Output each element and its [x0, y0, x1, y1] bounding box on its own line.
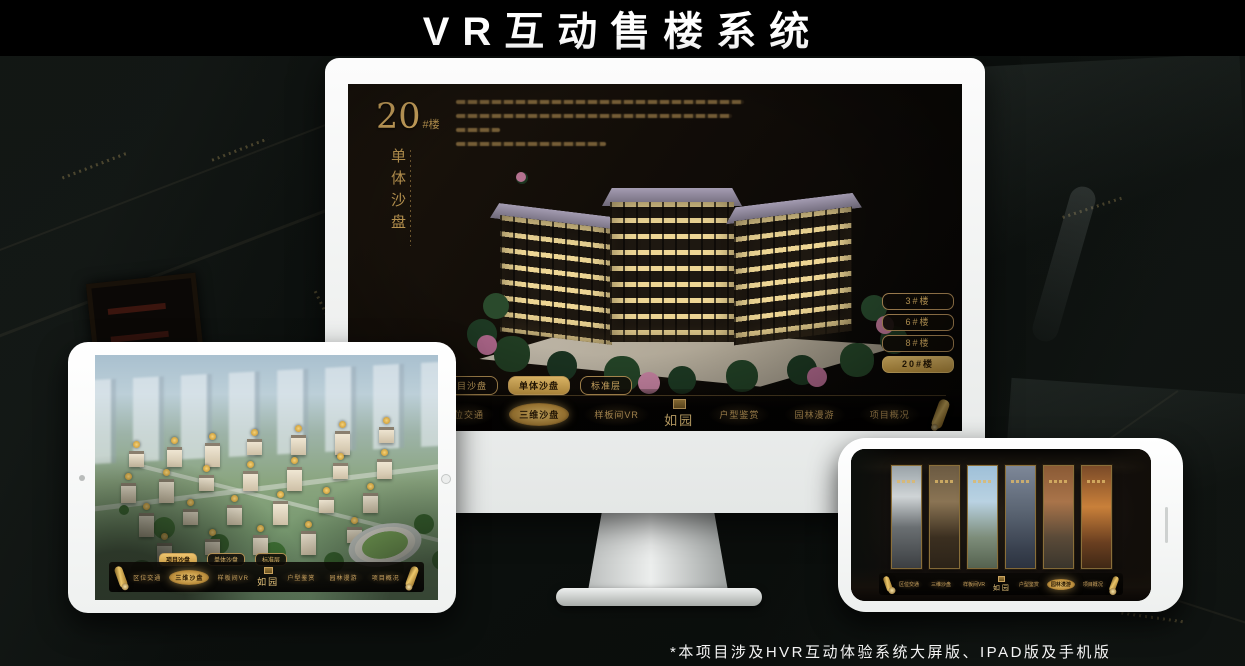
- title-bar: VR互动售楼系统: [0, 0, 1245, 56]
- monitor-stand-neck: [588, 511, 728, 591]
- logo-name: 如园: [993, 583, 1011, 593]
- building-marker[interactable]: [323, 487, 330, 494]
- gallery-panel-6[interactable]: [1081, 465, 1112, 569]
- aerial-building: [291, 435, 306, 455]
- page-title: VR互动售楼系统: [423, 0, 823, 57]
- nav-item-6[interactable]: 项目概况: [366, 570, 406, 585]
- main-navbar: 区位交通三维沙盘样板间VR如园户型鉴赏园林漫游项目概况: [879, 573, 1123, 595]
- building-marker[interactable]: [161, 533, 168, 540]
- aerial-building: [333, 463, 348, 479]
- gallery-panel-2[interactable]: [929, 465, 960, 569]
- side-button[interactable]: [1165, 507, 1168, 543]
- building-marker[interactable]: [143, 503, 150, 510]
- building-marker[interactable]: [247, 461, 254, 468]
- nav-item-4[interactable]: 户型鉴赏: [709, 403, 769, 426]
- aerial-building: [243, 471, 258, 491]
- building-model[interactable]: [460, 144, 890, 390]
- aerial-building: [377, 459, 392, 479]
- camera-icon: [79, 475, 85, 481]
- gallery-panels: [893, 465, 1109, 567]
- scroll-tip-icon: [404, 583, 413, 592]
- aerial-building: [253, 535, 268, 555]
- gallery-panel-4[interactable]: [1005, 465, 1036, 569]
- nav-item-3[interactable]: 样板间VR: [959, 579, 989, 590]
- scroll-tip-icon: [887, 586, 896, 595]
- scroll-icon[interactable]: [1108, 575, 1119, 592]
- building-button-2[interactable]: 6#楼: [882, 314, 954, 331]
- building-marker[interactable]: [231, 495, 238, 502]
- aerial-building: [247, 439, 262, 455]
- nav-item-6[interactable]: 项目概况: [1079, 579, 1107, 590]
- nav-item-6[interactable]: 项目概况: [860, 403, 920, 426]
- phone-frame: 区位交通三维沙盘样板间VR如园户型鉴赏园林漫游项目概况: [838, 438, 1183, 612]
- building-marker[interactable]: [291, 457, 298, 464]
- nav-item-2[interactable]: 三维沙盘: [509, 403, 569, 426]
- main-navbar: 区位交通三维沙盘样板间VR如园户型鉴赏园林漫游项目概况: [109, 562, 424, 592]
- aerial-building: [121, 483, 136, 503]
- aerial-building: [167, 447, 182, 467]
- monitor-stand-base: [556, 588, 762, 606]
- section-heading: 20#楼: [376, 100, 440, 135]
- intro-text-line: [456, 100, 744, 104]
- scroll-tip-icon: [930, 423, 939, 431]
- aerial-building: [183, 509, 198, 525]
- aerial-building: [287, 467, 302, 491]
- gallery-panel-3[interactable]: [967, 465, 998, 569]
- aerial-building: [335, 431, 350, 455]
- map-label-dash: [1121, 612, 1185, 624]
- scroll-tip-icon: [121, 582, 130, 591]
- gallery-panel-5[interactable]: [1043, 465, 1074, 569]
- aerial-building: [199, 475, 214, 491]
- building-marker[interactable]: [351, 517, 358, 524]
- nav-item-5[interactable]: 园林漫游: [785, 403, 845, 426]
- map-label-dash: [62, 152, 128, 180]
- logo-name: 如园: [257, 575, 279, 588]
- scroll-tip-icon: [1108, 587, 1117, 596]
- phone-screen: 区位交通三维沙盘样板间VR如园户型鉴赏园林漫游项目概况: [851, 449, 1151, 601]
- aerial-building: [319, 497, 334, 513]
- aerial-building: [301, 531, 316, 555]
- section-subtitle: 单体沙盘: [388, 148, 409, 236]
- building-button-1[interactable]: 3#楼: [882, 293, 954, 310]
- building-marker[interactable]: [133, 441, 140, 448]
- ruyuan-logo: 如园: [993, 576, 1011, 593]
- building-button-3[interactable]: 8#楼: [882, 335, 954, 352]
- aerial-building: [379, 427, 394, 443]
- building-marker[interactable]: [171, 437, 178, 444]
- logo-seal-icon: [264, 567, 273, 574]
- intro-text-line: [456, 128, 500, 132]
- intro-text-line: [456, 114, 732, 118]
- nav-item-1[interactable]: 区位交通: [895, 579, 923, 590]
- poster: VR互动售楼系统 20#楼 单体沙盘: [0, 0, 1245, 666]
- nav-item-5[interactable]: 园林漫游: [324, 570, 364, 585]
- building-facade: [734, 207, 852, 345]
- aerial-building: [273, 501, 288, 525]
- building-marker[interactable]: [257, 525, 264, 532]
- building-marker[interactable]: [163, 469, 170, 476]
- building-facade: [610, 202, 734, 342]
- nav-item-5[interactable]: 园林漫游: [1047, 579, 1075, 590]
- gallery-panel-1[interactable]: [891, 465, 922, 569]
- building-marker[interactable]: [295, 425, 302, 432]
- building-number: 20: [376, 97, 421, 137]
- aerial-building: [363, 493, 378, 513]
- ruyuan-logo: 如园: [664, 399, 694, 429]
- tab-3[interactable]: 标准层: [580, 376, 632, 395]
- building-facade: [500, 215, 612, 345]
- footnote: *本项目涉及HVR互动体验系统大屏版、IPAD版及手机版: [670, 641, 1111, 662]
- building-marker[interactable]: [339, 421, 346, 428]
- building-selector: 3#楼6#楼8#楼20#楼: [882, 293, 954, 373]
- building-marker[interactable]: [209, 433, 216, 440]
- building-marker[interactable]: [337, 453, 344, 460]
- landscape-trees: [119, 505, 129, 515]
- scroll-icon[interactable]: [882, 575, 893, 592]
- scroll-icon[interactable]: [404, 565, 419, 588]
- building-number-suffix: #楼: [423, 119, 440, 131]
- building-marker[interactable]: [305, 521, 312, 528]
- aerial-building: [129, 451, 144, 467]
- nav-item-2[interactable]: 三维沙盘: [927, 579, 955, 590]
- ruyuan-logo: 如园: [257, 567, 279, 588]
- nav-item-1[interactable]: 区位交通: [127, 570, 167, 585]
- building-marker[interactable]: [125, 473, 132, 480]
- building-marker[interactable]: [381, 449, 388, 456]
- aerial-building: [159, 479, 174, 503]
- tab-2[interactable]: 单体沙盘: [508, 376, 570, 395]
- nav-item-3[interactable]: 样板间VR: [584, 403, 649, 426]
- sandbox-tabs: 项目沙盘单体沙盘标准层: [436, 376, 632, 395]
- ipad-screen: 项目沙盘单体沙盘标准层 区位交通三维沙盘样板间VR如园户型鉴赏园林漫游项目概况: [95, 355, 438, 600]
- nav-item-3[interactable]: 样板间VR: [212, 570, 255, 585]
- building-marker[interactable]: [277, 491, 284, 498]
- logo-seal-icon: [998, 576, 1005, 582]
- building-marker[interactable]: [187, 499, 194, 506]
- nav-item-2[interactable]: 三维沙盘: [169, 570, 209, 585]
- aerial-building: [205, 443, 220, 467]
- heading-divider: [410, 150, 411, 246]
- nav-item-4[interactable]: 户型鉴赏: [1015, 579, 1043, 590]
- ipad-frame: 项目沙盘单体沙盘标准层 区位交通三维沙盘样板间VR如园户型鉴赏园林漫游项目概况: [68, 342, 456, 613]
- aerial-photo: [975, 53, 1245, 277]
- nav-item-4[interactable]: 户型鉴赏: [281, 570, 321, 585]
- logo-name: 如园: [664, 410, 694, 429]
- main-navbar: 区位交通三维沙盘样板间VR如园户型鉴赏园林漫游项目概况: [434, 395, 946, 431]
- building-marker[interactable]: [367, 483, 374, 490]
- building-marker[interactable]: [251, 429, 258, 436]
- blossom-trees: [516, 172, 526, 182]
- home-button[interactable]: [441, 474, 451, 484]
- building-button-4[interactable]: 20#楼: [882, 356, 954, 373]
- aerial-building: [139, 513, 154, 537]
- building-marker[interactable]: [383, 417, 390, 424]
- logo-seal-icon: [673, 399, 686, 409]
- building-marker[interactable]: [209, 529, 216, 536]
- building-marker[interactable]: [203, 465, 210, 472]
- aerial-building: [227, 505, 242, 525]
